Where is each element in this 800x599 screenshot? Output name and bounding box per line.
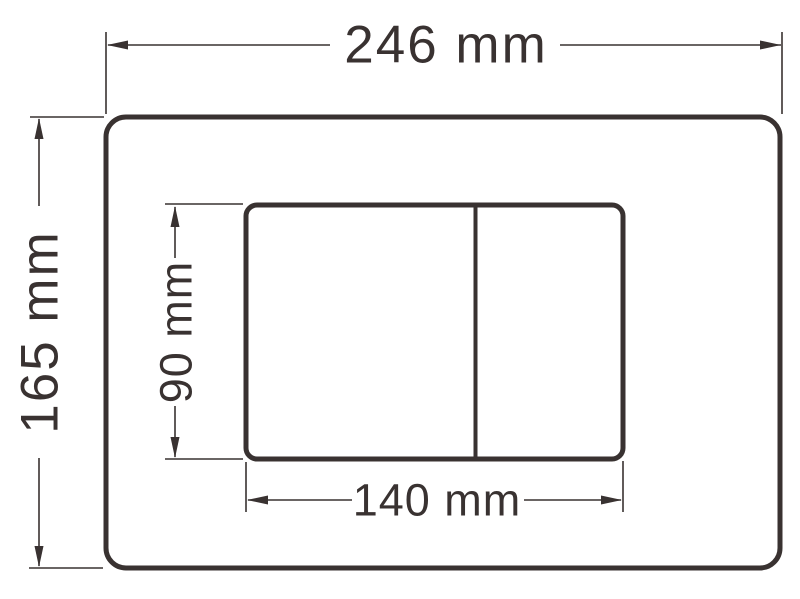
arrowhead-right: [760, 41, 781, 50]
arrowhead-up: [171, 206, 180, 227]
arrowhead-left: [247, 496, 268, 505]
dim-label-plate-width: 246 mm: [344, 16, 547, 75]
dim-buttons-height: 90 mm: [151, 204, 244, 459]
dim-label-buttons-width: 140 mm: [353, 475, 522, 526]
drawing-canvas: 246 mm 165 mm 90 mm: [0, 0, 800, 599]
dim-plate-height: 165 mm: [11, 117, 105, 568]
arrowhead-right: [601, 496, 622, 505]
buttons-outline: [246, 205, 623, 459]
flush-buttons: [246, 205, 623, 459]
dim-plate-width: 246 mm: [106, 16, 782, 115]
arrowhead-down: [35, 546, 44, 567]
dimension-drawing: 246 mm 165 mm 90 mm: [0, 0, 800, 599]
dim-buttons-width: 140 mm: [246, 461, 623, 526]
dim-label-plate-height: 165 mm: [11, 230, 70, 433]
dim-label-buttons-height: 90 mm: [151, 261, 202, 404]
arrowhead-left: [107, 41, 128, 50]
arrowhead-down: [171, 437, 180, 458]
arrowhead-up: [35, 118, 44, 139]
